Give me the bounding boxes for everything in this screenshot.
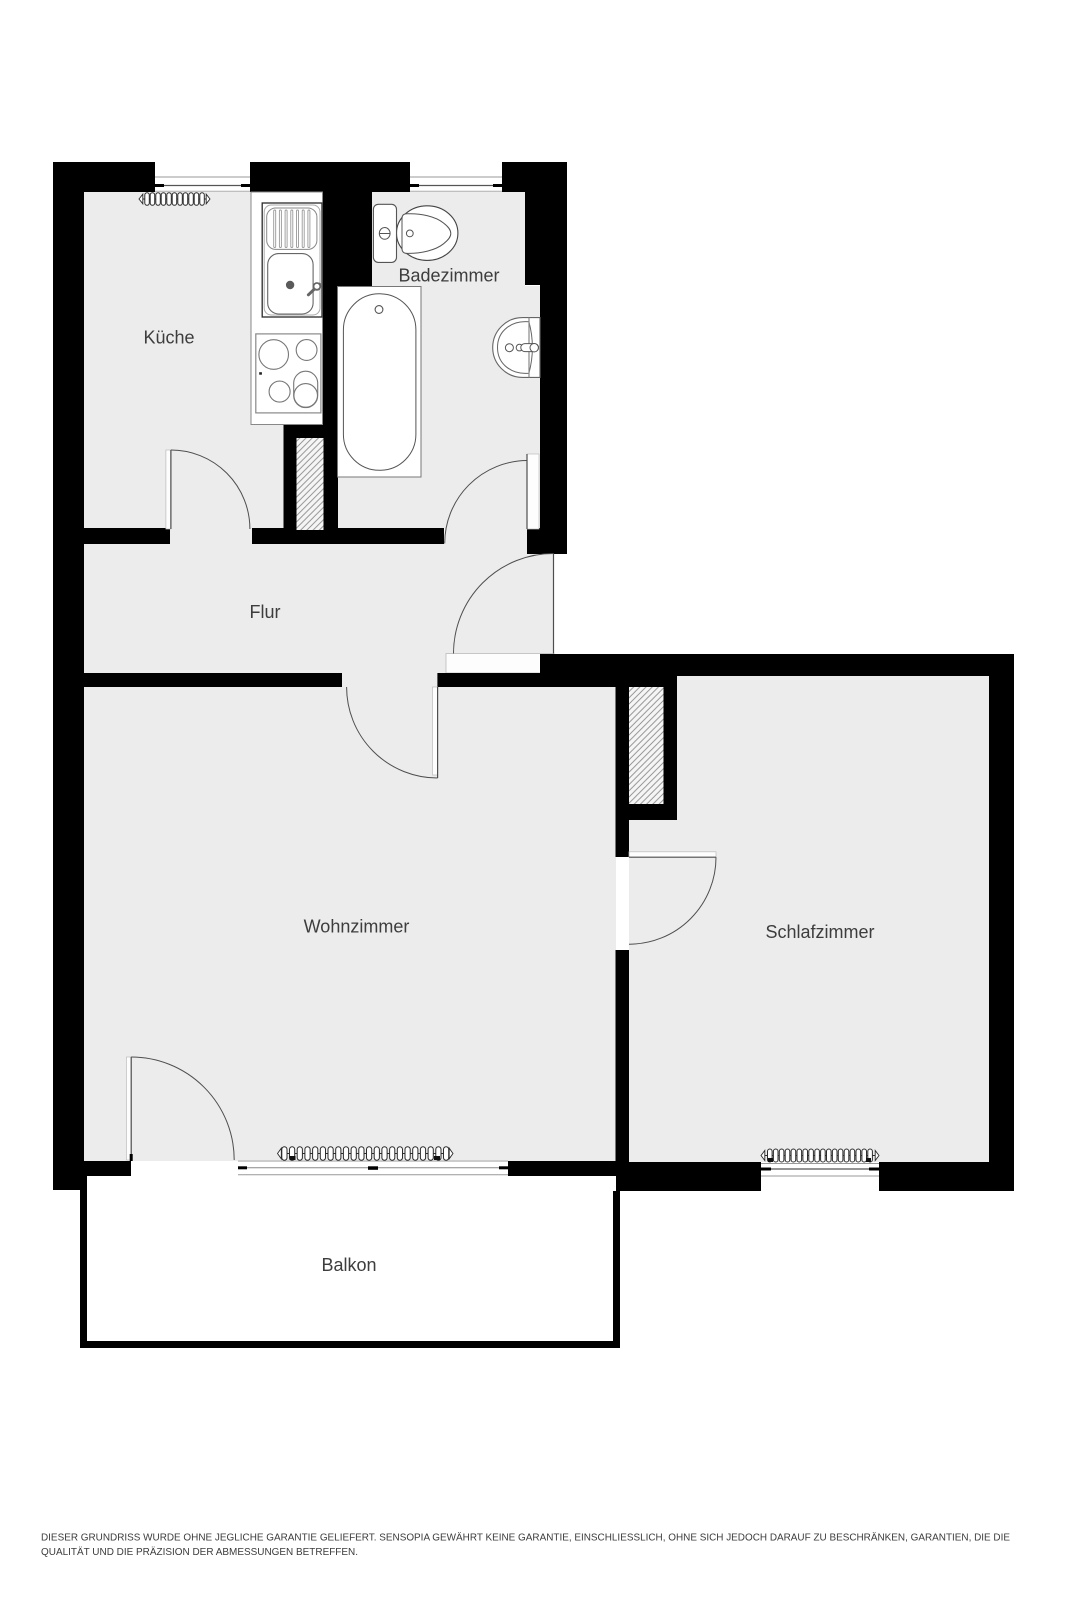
svg-text:Küche: Küche: [143, 328, 194, 348]
svg-text:Wohnzimmer: Wohnzimmer: [304, 917, 410, 937]
svg-text:Flur: Flur: [250, 602, 281, 622]
svg-text:DIESER GRUNDRISS WURDE OHNE JE: DIESER GRUNDRISS WURDE OHNE JEGLICHE GAR…: [41, 1532, 1010, 1544]
svg-text:Schlafzimmer: Schlafzimmer: [765, 922, 874, 942]
svg-text:Badezimmer: Badezimmer: [398, 266, 499, 286]
svg-text:QUALITÄT UND DIE PRÄZISION DER: QUALITÄT UND DIE PRÄZISION DER ABMESSUNG…: [41, 1546, 358, 1558]
svg-text:Balkon: Balkon: [321, 1255, 376, 1275]
